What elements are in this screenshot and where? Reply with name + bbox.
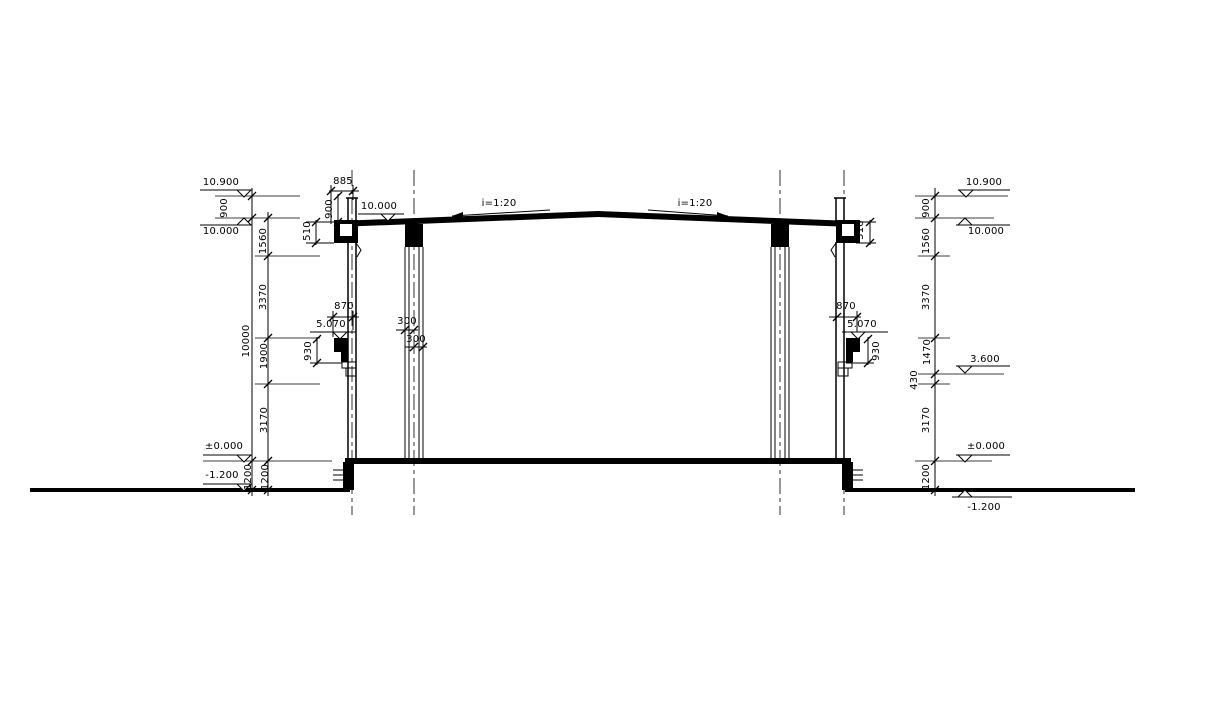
dim-label-right-s1: 1560 [922,228,932,254]
dim-label-right-s5: 3170 [922,407,932,433]
elevation-label-left-ground: -1.200 [205,471,238,481]
slope-label-left: i=1:20 [482,199,517,209]
dim-label-corbel-width-right: 870 [836,302,856,312]
dim-label-column-width-b: 300 [406,335,426,345]
right-wall-footing [842,462,863,490]
elevation-label-roof-center: 10.000 [361,202,397,212]
dim-label-gutter-right: 510 [856,220,866,240]
dim-label-column-width-a: 300 [397,317,417,327]
elevation-label-left-floor: ±0.000 [205,442,243,452]
left-wall-footing [333,462,354,490]
dim-label-right-s2: 3370 [922,284,932,310]
dim-label-corbel-height-right: 930 [872,341,882,361]
dim-label-parapet-width: 885 [333,177,353,187]
dim-label-right-s3: 1470 [923,339,933,365]
elevation-label-right-floor: ±0.000 [967,442,1005,452]
elevation-label-left-top: 10.900 [203,178,239,188]
dim-label-corbel-height-left: 930 [304,341,314,361]
dim-label-right-s0: 900 [922,198,932,218]
right-corbel [838,338,860,376]
dim-label-left-s2: 3370 [259,284,269,310]
ground-line [30,488,1135,492]
elevation-label-corbel-left: 5.070 [316,320,346,330]
dim-label-right-s6: 1200 [922,464,932,490]
dim-label-corbel-width-left: 870 [334,302,354,312]
dim-label-left-below-floor: 1200 [244,464,254,490]
slope-label-right: i=1:20 [678,199,713,209]
floor-slab [345,458,851,464]
elevation-label-right-top: 10.900 [966,178,1002,188]
dim-label-left-s4: 3170 [260,407,270,433]
elevation-label-right-ground: -1.200 [967,503,1000,513]
dim-label-gutter-left: 510 [303,221,313,241]
dim-label-left-s1: 1560 [259,228,269,254]
dim-label-left-parapet: 900 [220,198,230,218]
elevation-label-right-mid: 3.600 [970,355,1000,365]
dim-label-left-s3: 1900 [260,343,270,369]
section-drawing-canvas: 10.900 10.000 ±0.000 -1.200 900 10000 12… [0,0,1209,701]
elevation-label-corbel-right: 5.070 [847,320,877,330]
elevation-label-right-roof: 10.000 [968,227,1004,237]
dim-label-right-s4: 430 [910,370,920,390]
section-geometry [0,0,1209,701]
left-corbel [334,338,356,376]
elevation-label-left-roof: 10.000 [203,227,239,237]
dim-label-left-s5: 1200 [261,464,271,490]
dim-label-parapet-height: 900 [325,199,335,219]
elevation-markers [200,190,1012,497]
dim-label-left-overall: 10000 [242,325,252,358]
